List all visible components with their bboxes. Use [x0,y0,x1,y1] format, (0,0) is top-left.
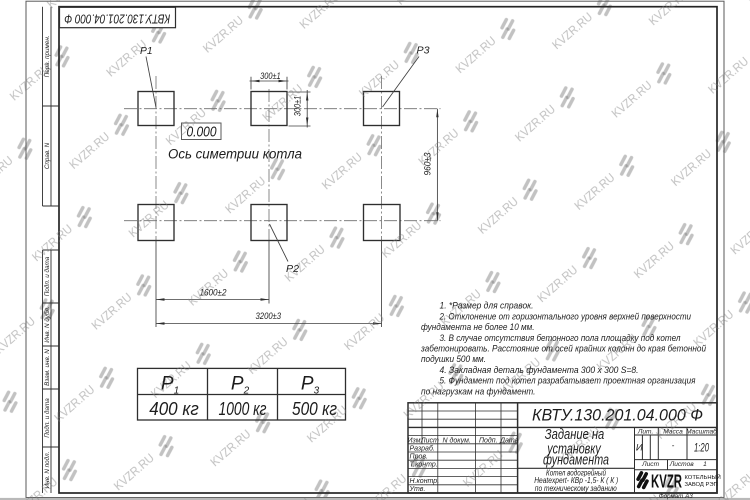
svg-text:5. Фундамент под котел разраб: 5. Фундамент под котел разрабатывает про… [440,376,696,386]
svg-text:Формат А3: Формат А3 [659,493,693,500]
svg-text:P2: P2 [286,264,299,275]
svg-text:3. В случае отсутствия бетонн: 3. В случае отсутствия бетонного пола пл… [440,333,681,343]
svg-text:Подп. и дата: Подп. и дата [43,398,51,438]
svg-text:Т.контр.: Т.контр. [410,462,438,469]
svg-text:Справ. N: Справ. N [44,142,51,169]
svg-text:400 кг: 400 кг [149,399,199,419]
svg-text:Масштаб: Масштаб [686,428,717,436]
svg-text:по нагрузкам на фундамент.: по нагрузкам на фундамент. [421,386,536,396]
svg-text:1600±2: 1600±2 [200,287,227,297]
svg-text:Дата: Дата [499,437,519,444]
svg-text:4. Закладная деталь фундамент: 4. Закладная деталь фундамента 300 х 300… [440,365,639,375]
svg-text:Утв.: Утв. [409,486,426,493]
svg-text:1: 1 [703,461,707,468]
svg-text:И: И [636,442,643,453]
svg-text:P1: P1 [140,46,153,57]
svg-text:N докум.: N докум. [443,436,471,444]
svg-text:фундамента: фундамента [543,453,609,469]
svg-text:960±3: 960±3 [423,153,433,176]
svg-text:Масса: Масса [663,429,683,436]
svg-text:Н.контр.: Н.контр. [410,478,440,485]
svg-text:Лист: Лист [420,437,439,444]
svg-text:ЗАВОД РЭП: ЗАВОД РЭП [685,482,718,488]
svg-text:КОТЕЛЬНЫЙ: КОТЕЛЬНЫЙ [685,473,721,481]
svg-text:P3: P3 [417,46,430,57]
svg-text:фундамента не более 10 мм.: фундамента не более 10 мм. [421,322,535,332]
svg-text:300±1: 300±1 [292,96,302,117]
svg-text:Листов: Листов [669,461,695,468]
svg-text:300±1: 300±1 [260,71,281,81]
svg-text:забетонировать. Расстояние от: забетонировать. Расстояние от осей крайн… [420,344,706,354]
svg-text:Инв. N дубл.: Инв. N дубл. [43,306,51,342]
svg-text:1. *Размер для справок.: 1. *Размер для справок. [440,301,534,311]
svg-text:-: - [672,441,675,450]
svg-text:подушки 500 мм.: подушки 500 мм. [421,354,486,364]
svg-text:Задание на: Задание на [545,427,605,443]
svg-text:Подп.: Подп. [479,436,498,444]
svg-text:Пров.: Пров. [410,453,429,460]
svg-text:KVZR: KVZR [651,472,682,492]
svg-text:500 кг: 500 кг [292,399,337,419]
svg-text:2. Отклонение от горизонтальн: 2. Отклонение от горизонтального уровня … [439,311,691,321]
svg-text:0.000: 0.000 [187,124,218,141]
svg-text:1000 кг: 1000 кг [219,399,267,419]
svg-text:по техническому заданию: по техническому заданию [535,484,617,493]
svg-text:Взам. инв. N: Взам. инв. N [44,349,51,386]
svg-text:КВТУ.130.201.04.000 Ф: КВТУ.130.201.04.000 Ф [532,406,703,425]
svg-text:Разраб.: Разраб. [410,444,435,452]
svg-text:Перв. примен.: Перв. примен. [44,35,51,77]
svg-text:1:20: 1:20 [694,443,709,455]
svg-text:Подп. и дата: Подп. и дата [43,256,51,296]
svg-text:Лит.: Лит. [637,429,654,436]
svg-text:КВТУ.130.201.04.000 Ф: КВТУ.130.201.04.000 Ф [64,12,170,26]
svg-text:Лист: Лист [641,461,659,468]
svg-text:3200±3: 3200±3 [256,311,282,321]
svg-text:Инв. N подл.: Инв. N подл. [43,452,51,489]
svg-text:Ось симетрии котла: Ось симетрии котла [168,147,302,162]
